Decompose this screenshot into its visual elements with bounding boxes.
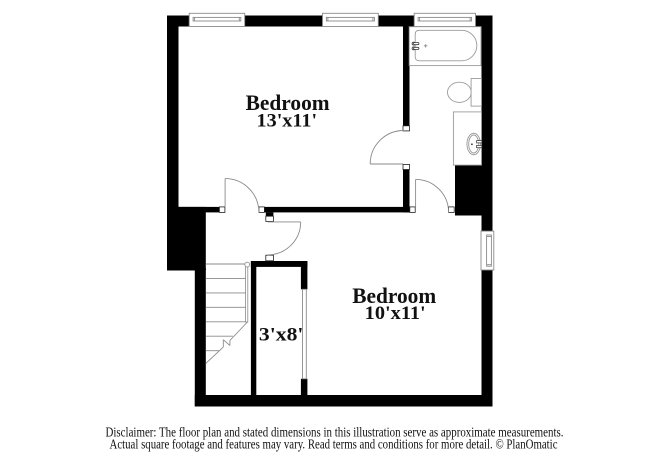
svg-text:13'x11': 13'x11' (257, 112, 318, 132)
svg-text:Actual square footage and feat: Actual square footage and features may v… (110, 437, 558, 452)
svg-text:3'x8': 3'x8' (259, 326, 304, 346)
svg-text:10'x11': 10'x11' (365, 304, 426, 324)
